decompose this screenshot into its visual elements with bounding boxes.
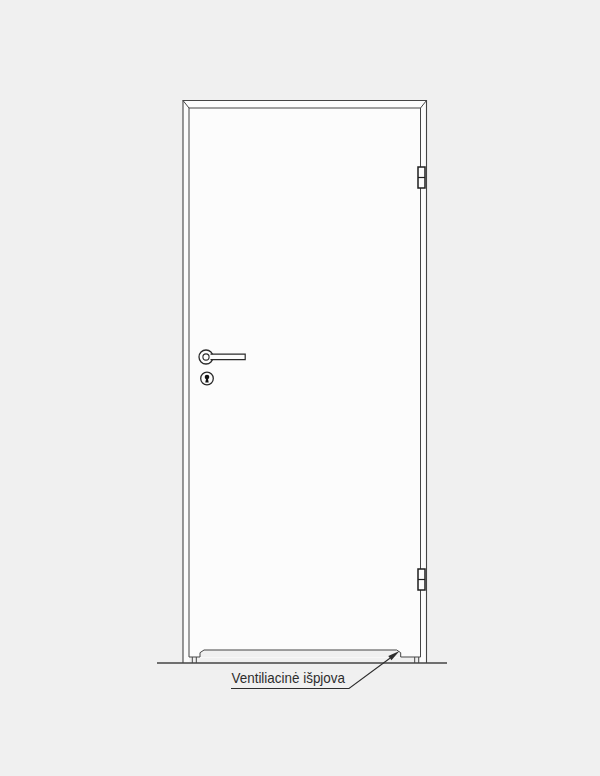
door-face bbox=[183, 101, 427, 664]
hinge-top-icon bbox=[418, 167, 425, 188]
annotation-label: Ventiliacinė išpjova bbox=[232, 669, 346, 686]
door-technical-drawing: Ventiliacinė išpjova bbox=[0, 0, 600, 776]
keyhole-icon bbox=[201, 372, 214, 385]
handle-lever-fill bbox=[211, 354, 246, 360]
hinge-bottom-icon bbox=[418, 569, 425, 590]
door-bottom-gap bbox=[190, 658, 420, 663]
ventilation-cutout bbox=[200, 650, 401, 657]
